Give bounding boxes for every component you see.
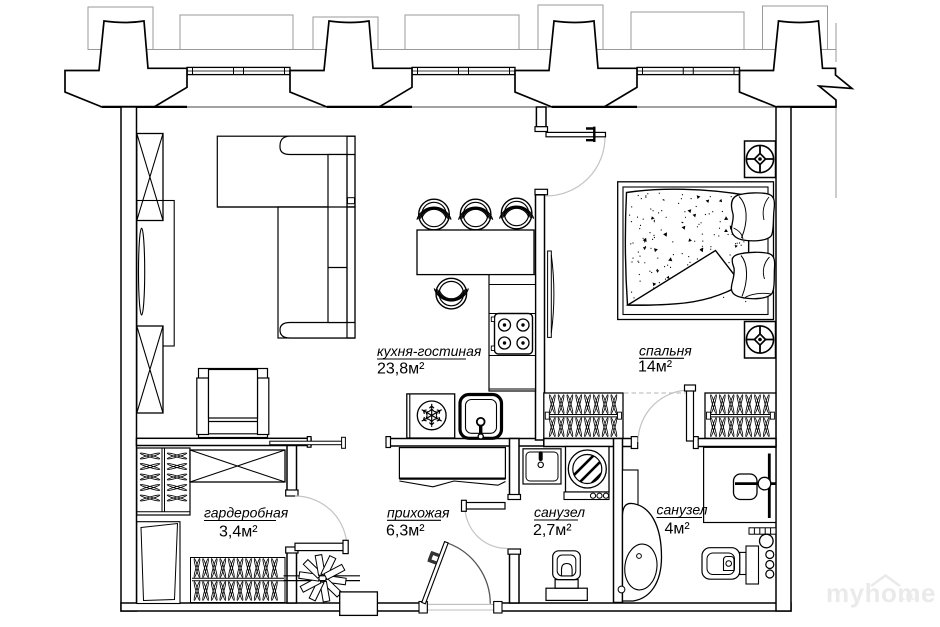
svg-text:2,7м²: 2,7м²	[533, 522, 572, 539]
svg-text:гардеробная: гардеробная	[204, 505, 289, 521]
svg-text:кухня-гостиная: кухня-гостиная	[377, 343, 482, 359]
svg-text:myhome: myhome	[826, 578, 936, 608]
svg-text:санузел: санузел	[657, 502, 708, 518]
svg-text:4м²: 4м²	[665, 521, 691, 538]
svg-text:6,3м²: 6,3м²	[386, 523, 425, 540]
svg-text:прихожая: прихожая	[387, 504, 450, 520]
svg-text:3,4м²: 3,4м²	[219, 524, 258, 541]
svg-text:спальня: спальня	[639, 342, 692, 358]
svg-text:санузел: санузел	[534, 504, 585, 520]
svg-text:23,8м²: 23,8м²	[377, 361, 425, 378]
svg-text:.ru: .ru	[902, 589, 917, 603]
svg-text:14м²: 14м²	[638, 359, 673, 376]
